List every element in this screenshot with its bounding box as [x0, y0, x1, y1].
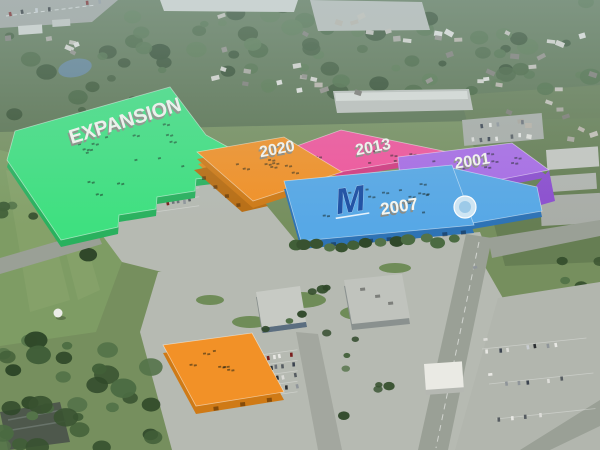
atmospheric-haze [0, 0, 600, 450]
aerial-campus-photo: EXPANSION EXPANSION 2013 2013 2001 2001 … [0, 0, 600, 450]
aerial-scene: EXPANSION EXPANSION 2013 2013 2001 2001 … [0, 0, 600, 450]
